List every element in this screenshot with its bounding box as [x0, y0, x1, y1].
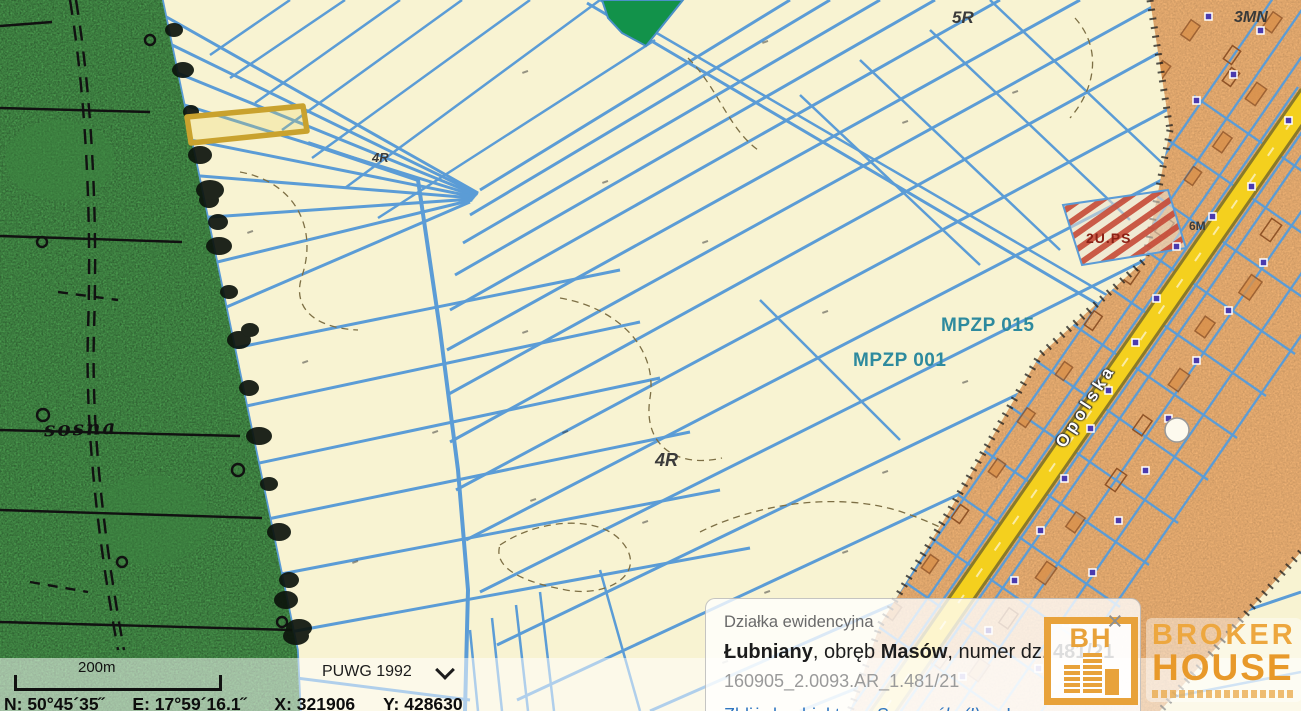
details-link[interactable]: Szczegóły (I)	[876, 705, 980, 711]
zone-label-6m: 6M	[1189, 219, 1206, 233]
parcel-commune: Łubniany	[724, 641, 813, 663]
parcel-sep1: , obręb	[813, 641, 881, 663]
building-right	[1105, 669, 1119, 695]
chevron-down-icon[interactable]	[435, 660, 455, 680]
building-left	[1064, 665, 1080, 695]
crs-selector[interactable]: PUWG 1992	[322, 663, 452, 681]
coordinates-readout: N: 50°45´35˝ E: 17°59´16.1˝ X: 321906 Y:…	[4, 694, 463, 711]
zone-label-4r-large: 4R	[655, 450, 678, 471]
zone-label-5r: 5R	[952, 8, 974, 28]
scalebar	[14, 675, 222, 691]
forest-annotation-sosna: sosna	[44, 415, 118, 442]
broker-house-wordmark: BROKER HOUSE	[1146, 618, 1301, 702]
buildings-icon	[1064, 653, 1119, 695]
broker-house-badge-logo: BH	[1044, 617, 1138, 705]
other-link[interactable]: Inne	[1006, 705, 1041, 711]
scalebar-label: 200m	[78, 659, 116, 676]
house-word: HOUSE	[1152, 650, 1296, 685]
mpzp-015-label: MPZP 015	[941, 315, 1034, 337]
coord-x: X: 321906	[274, 694, 355, 711]
zone-label-2ups: 2U.PS	[1086, 230, 1131, 246]
survey-point-symbol	[1165, 418, 1189, 442]
coord-n: N: 50°45´35˝	[4, 694, 104, 711]
zone-label-4r-small: 4R	[372, 150, 389, 165]
zone-label-3mn: 3MN	[1234, 9, 1268, 27]
parcel-precinct: Masów	[881, 641, 948, 663]
logo-subtitle-strip	[1152, 690, 1294, 698]
zoom-to-object-link[interactable]: Zbliż do obiektu	[724, 705, 850, 711]
crs-selector-value: PUWG 1992	[322, 663, 412, 681]
coord-e: E: 17°59´16.1˝	[132, 694, 246, 711]
mpzp-001-label: MPZP 001	[853, 350, 946, 372]
broker-word: BROKER	[1152, 622, 1296, 650]
close-icon[interactable]: ×	[1107, 608, 1123, 635]
map-viewer: 4R 4R 5R 3MN 6M 2U.PS MPZP 015 MPZP 001 …	[0, 0, 1301, 711]
coord-y: Y: 428630	[383, 694, 462, 711]
parcel-sep2: , numer dz.	[947, 641, 1053, 663]
popup-actions: Zbliż do obiektu Szczegóły (I) Inne	[724, 705, 1122, 711]
building-middle	[1083, 653, 1102, 695]
